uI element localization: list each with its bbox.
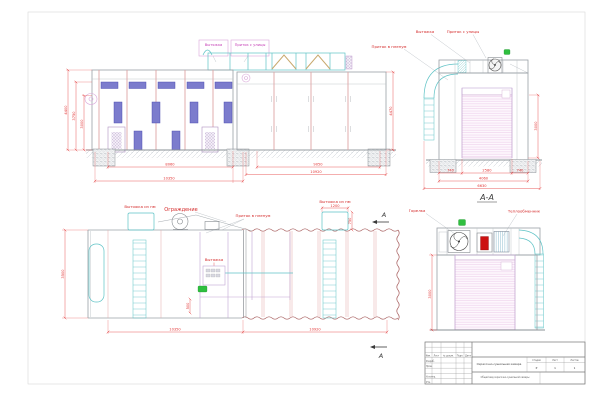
dim-side-mid: 4060 bbox=[479, 177, 489, 181]
corrugation-right bbox=[397, 230, 399, 320]
tb-row-nkontr: Н.контр. bbox=[426, 376, 436, 379]
roof-brace-icon bbox=[272, 55, 330, 69]
burner-label: Горелка bbox=[409, 208, 426, 213]
duct-curve-icon bbox=[203, 50, 212, 55]
svg-text:А: А bbox=[378, 352, 383, 360]
intake-filter bbox=[458, 61, 466, 73]
roller-door bbox=[462, 88, 512, 158]
heat-exchanger-icon bbox=[494, 232, 509, 253]
dim-rear-right: 10920 bbox=[309, 328, 321, 332]
indicator-green bbox=[459, 220, 466, 226]
tb-sheets-value: 1 bbox=[574, 366, 576, 370]
tb-col-podp: Подп. bbox=[457, 354, 464, 357]
side-intake-street-label: Приток с улицы bbox=[447, 29, 480, 34]
foundation-block bbox=[93, 149, 115, 166]
duct-box-dimensions: 1200 750 bbox=[322, 204, 352, 230]
section-arrow-bottom: А bbox=[370, 345, 387, 360]
tb-view-name: Общий вид окрасочно-сушильной камеры bbox=[481, 376, 530, 379]
tb-col-dokum: № докум. bbox=[443, 354, 454, 357]
tb-row-razrab: Разраб. bbox=[426, 360, 435, 363]
dim-side-seg3: 740 bbox=[517, 169, 525, 173]
ladder bbox=[535, 254, 544, 328]
side-intake-plenum-label: Приток в пленум bbox=[372, 44, 407, 49]
indicator-green bbox=[198, 286, 207, 292]
tb-col-list: Лист bbox=[434, 354, 440, 357]
dim-front-h1: 4400 bbox=[64, 105, 68, 115]
front-intake-street-label: Приток с улицы bbox=[235, 43, 266, 47]
section-a-a-view: А-А Горелка Теплообменник bbox=[409, 193, 545, 330]
dim-front-h3: 3000 bbox=[80, 119, 84, 129]
corrugation-top bbox=[242, 229, 398, 231]
tb-row-prov: Пров. bbox=[426, 365, 433, 368]
dim-right-height: 4470 bbox=[389, 106, 393, 116]
tb-doc-name: Окрасочно-сушильная камера bbox=[477, 362, 522, 366]
exhaust-duct-box bbox=[322, 212, 348, 230]
roller-door bbox=[455, 255, 515, 330]
machine-bay: Вытяжка 500 bbox=[186, 232, 293, 318]
dim-rear-height: 3500 bbox=[61, 269, 65, 279]
dim-front-h2: 3750 bbox=[72, 111, 76, 121]
dim-offset: 500 bbox=[186, 302, 190, 310]
tb-sheets-label: Листов bbox=[570, 359, 579, 362]
dim-side-height: 3000 bbox=[534, 121, 538, 131]
tb-row-utv: Утв. bbox=[426, 381, 431, 384]
low-window-row bbox=[134, 131, 180, 150]
tb-stage-value: Р bbox=[536, 366, 538, 370]
exhaust-fan-icon bbox=[448, 231, 470, 253]
rear-intake-plenum-label: Приток в пленум bbox=[236, 213, 271, 218]
tall-window-row bbox=[114, 102, 232, 123]
ladder bbox=[323, 240, 336, 318]
intake-duct-elbow bbox=[424, 64, 458, 140]
dim-side-seg1: 740 bbox=[447, 169, 455, 173]
indicator-green bbox=[504, 50, 510, 55]
front-elevation-view: Вытяжка Приток с улицы bbox=[64, 40, 396, 183]
dim-right-inner: 9050 bbox=[313, 163, 323, 167]
section-arrow-top: А bbox=[372, 211, 389, 224]
tb-col-data: Дата bbox=[465, 354, 471, 357]
title-block: Изм. Лист № докум. Подп. Дата Разраб. Пр… bbox=[425, 342, 585, 384]
dim-section-height: 3000 bbox=[428, 289, 432, 299]
foundation-block bbox=[368, 149, 390, 166]
section-title: А-А bbox=[479, 193, 494, 202]
roof-fan-icon bbox=[172, 214, 188, 230]
panel-buttons bbox=[206, 269, 220, 277]
container-ribs bbox=[262, 231, 376, 317]
dim-front-inner: 8060 bbox=[165, 163, 175, 167]
front-exhaust-label: Вытяжка bbox=[205, 43, 223, 47]
drawing-sheet: Вытяжка Приток с улицы bbox=[0, 0, 600, 400]
top-window-row bbox=[101, 82, 232, 89]
rear-exhaust-panel-label: Вытяжка bbox=[205, 257, 224, 262]
fan-top-icon bbox=[242, 74, 250, 82]
corrugation-bottom bbox=[242, 317, 398, 319]
personnel-door bbox=[108, 127, 125, 152]
dim-duct-width: 1200 bbox=[330, 204, 340, 208]
burner-icon bbox=[477, 233, 492, 252]
hatch-icon bbox=[85, 94, 97, 105]
dim-right-outer: 10920 bbox=[310, 170, 322, 174]
tb-sheet-label: Лист bbox=[552, 359, 558, 362]
rear-elevation-view: Вытяжка из пм Ограждение Приток в пленум… bbox=[61, 199, 399, 360]
tb-col-izm: Изм. bbox=[426, 354, 431, 357]
dim-rear-left: 10350 bbox=[169, 328, 181, 332]
dim-duct-height: 750 bbox=[348, 217, 352, 225]
duct-loop bbox=[89, 244, 104, 302]
dim-side-outer: 6630 bbox=[477, 184, 487, 188]
svg-text:А: А bbox=[381, 211, 386, 219]
side-view: Вытяжка Приток с улицы Приток в пленум bbox=[372, 29, 542, 190]
tb-stage-label: Стадия bbox=[532, 359, 541, 362]
tb-sheet-value: 1 bbox=[554, 366, 556, 370]
heat-exchanger-label: Теплообменник bbox=[507, 209, 541, 214]
exhaust-duct-box bbox=[128, 213, 154, 230]
section-dimensions: 3000 bbox=[428, 255, 437, 330]
dim-side-seg2: 2580 bbox=[482, 169, 492, 173]
side-exhaust-label: Вытяжка bbox=[416, 29, 435, 34]
personnel-door bbox=[202, 127, 218, 152]
ladder bbox=[133, 240, 146, 318]
rear-exhaust-left-label: Вытяжка из пм bbox=[124, 204, 155, 209]
foundation-block bbox=[227, 149, 249, 166]
rear-guard-label: Ограждение bbox=[164, 207, 197, 213]
dim-front-outer: 10350 bbox=[163, 177, 175, 181]
